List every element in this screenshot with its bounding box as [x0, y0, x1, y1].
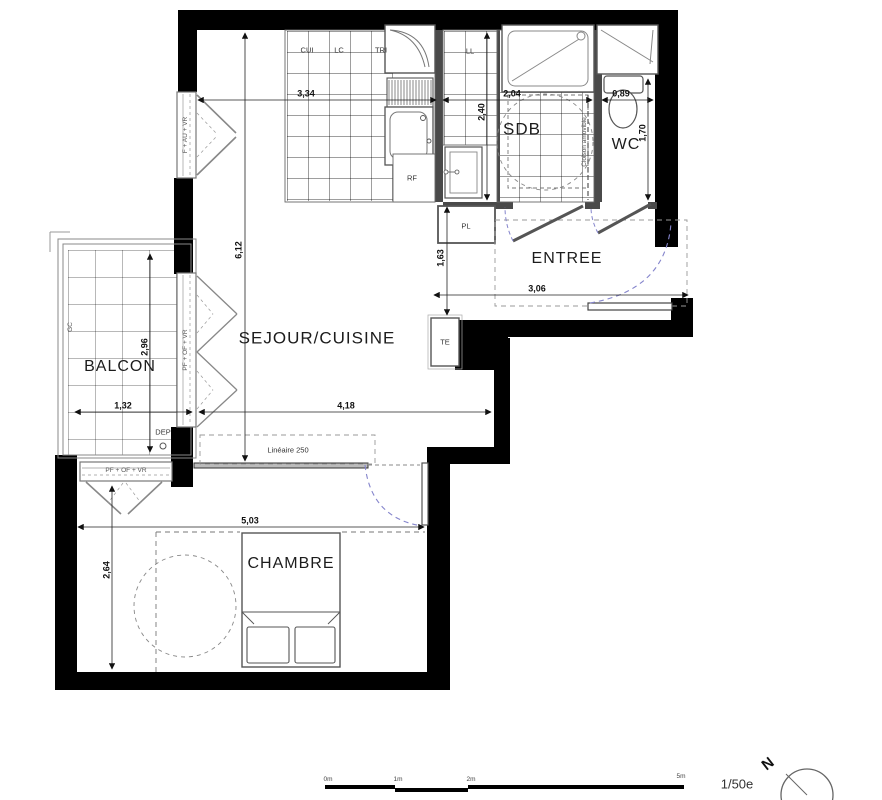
- plan-linework: [0, 0, 882, 800]
- dim-entree-width: 3,06: [528, 285, 546, 294]
- label-lineaire: Linéaire 250: [267, 446, 308, 454]
- scale-tick-2m: 2m: [466, 777, 475, 784]
- room-label-balcon: BALCON: [84, 359, 156, 375]
- label-dep: DEP: [155, 428, 170, 436]
- room-label-sdb: SDB: [503, 121, 541, 138]
- dim-balcon-width: 1,32: [114, 402, 132, 411]
- cooktop-icon: [385, 25, 435, 73]
- wc-window: [597, 25, 658, 74]
- dim-sejour-length: 6,12: [235, 241, 244, 259]
- dim-sejour-width: 4,18: [337, 402, 355, 411]
- label-ll: LL: [466, 47, 474, 55]
- label-window-balcon: PF + OF + VR: [183, 329, 190, 370]
- drainer-icon: [387, 78, 433, 107]
- room-label-sejour: SEJOUR/CUISINE: [239, 330, 396, 347]
- dim-balcon-depth: 2,96: [141, 338, 150, 356]
- toilet-icon: [604, 76, 643, 128]
- label-lc: LC: [334, 46, 344, 54]
- label-tri: TRI: [375, 46, 387, 54]
- bathtub-icon: [502, 25, 594, 92]
- dep-drain-icon: [160, 443, 166, 449]
- label-window-chambre: PF + OF + VR: [105, 468, 146, 475]
- room-label-chambre: CHAMBRE: [247, 556, 334, 572]
- scale-tick-0m: 0m: [323, 777, 332, 784]
- label-pl: PL: [461, 222, 470, 230]
- floor-plan: SEJOUR/CUISINE BALCON CHAMBRE ENTREE SDB…: [0, 0, 882, 800]
- sdb-door: [505, 206, 583, 241]
- dim-degagement: 1,63: [437, 249, 446, 267]
- chambre-door: [365, 463, 428, 526]
- dim-sdb-depth: 2,40: [478, 103, 487, 121]
- label-window-sejour: F + AU + VR: [183, 117, 190, 154]
- scale-bar: [325, 785, 684, 792]
- scale-tick-1m: 1m: [393, 777, 402, 784]
- dim-wc-depth: 1,70: [639, 124, 648, 142]
- room-label-entree: ENTREE: [532, 251, 603, 267]
- label-cui: CUI: [301, 46, 314, 54]
- hand-basin-icon: [444, 147, 482, 198]
- dim-sdb-width: 2,04: [503, 90, 521, 99]
- scale-ratio: 1/50e: [721, 778, 754, 791]
- label-cloison-amovible: Cloison amovible: [582, 117, 589, 167]
- bed-icon: [242, 533, 340, 667]
- scale-tick-5m: 5m: [676, 774, 685, 781]
- dim-chambre-width: 5,03: [241, 517, 259, 526]
- label-gc: GC: [68, 322, 75, 332]
- dim-cuisine-width: 3,34: [297, 90, 315, 99]
- north-compass-icon: [781, 769, 833, 800]
- dim-chambre-depth: 2,64: [103, 561, 112, 579]
- label-te: TE: [440, 338, 450, 346]
- label-rf: RF: [407, 174, 417, 182]
- room-label-wc: WC: [612, 137, 641, 153]
- dim-wc-width: 0,89: [612, 90, 630, 99]
